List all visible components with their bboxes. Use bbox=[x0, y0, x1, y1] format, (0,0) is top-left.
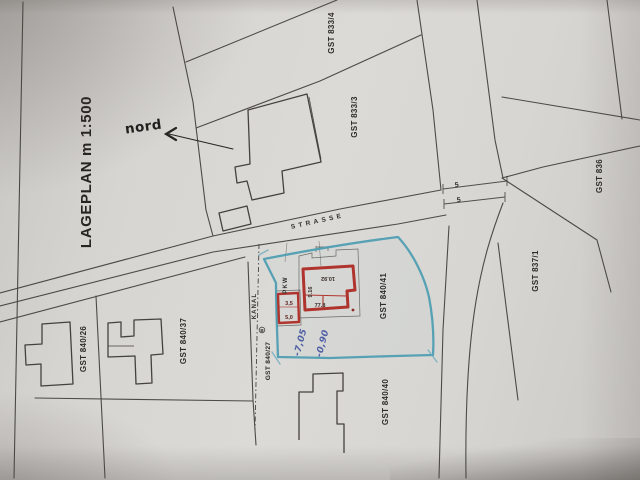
building-840-37-outline bbox=[108, 319, 163, 384]
plan-labels: LAGEPLAN m 1:500 nord STRASSE KANAL PKW … bbox=[78, 12, 604, 425]
boundary-833-4-north bbox=[186, 0, 337, 62]
plan-title: LAGEPLAN m 1:500 bbox=[78, 96, 95, 248]
sheet-edge-line bbox=[14, 2, 23, 478]
scanned-site-plan-photo: LAGEPLAN m 1:500 nord STRASSE KANAL PKW … bbox=[0, 0, 640, 480]
shed-outline bbox=[219, 206, 251, 231]
road-edge-north-right bbox=[477, 0, 503, 178]
boundary-west bbox=[173, 7, 213, 236]
parcel-label-840-27: GST 840/27 bbox=[265, 342, 272, 381]
boundary-833-4-south bbox=[196, 35, 421, 128]
kanal-label: KANAL bbox=[252, 293, 258, 320]
boundary-836-south bbox=[502, 146, 640, 178]
north-arrow bbox=[166, 128, 233, 149]
parcel-label-840-40: GST 840/40 bbox=[381, 379, 390, 425]
boundary-836-837 bbox=[502, 178, 611, 292]
parcel-label-833-3: GST 833/3 bbox=[350, 96, 359, 138]
garage-width-dim: 3,5 bbox=[285, 301, 293, 307]
street-label: STRASSE bbox=[290, 212, 345, 231]
north-label: nord bbox=[124, 117, 163, 138]
kanal-line bbox=[255, 244, 259, 430]
house-depth-dim: 9.16 bbox=[308, 287, 314, 298]
parcel-label-836: GST 836 bbox=[595, 159, 604, 193]
parcel-label-840-26: GST 840/26 bbox=[79, 326, 88, 372]
building-833-3-innerwall bbox=[309, 97, 321, 159]
house-width-dim: 10.92 bbox=[321, 275, 335, 281]
boundary-northeast bbox=[607, 0, 622, 119]
north-arrow-line bbox=[169, 134, 233, 149]
boundary-point-dot bbox=[352, 309, 355, 312]
road-dimension-lines bbox=[443, 176, 507, 209]
road-south-right-edge bbox=[466, 203, 503, 478]
road-edge-north-left bbox=[417, 0, 441, 190]
parcel-linework bbox=[0, 0, 640, 478]
house-level-dim: 77.8 bbox=[315, 303, 326, 309]
pkw-label: PKW bbox=[283, 276, 289, 293]
road-width-dim-1: 5 bbox=[454, 182, 459, 189]
paper-sheet: LAGEPLAN m 1:500 nord STRASSE KANAL PKW … bbox=[0, 0, 640, 480]
road-dim-line-2 bbox=[444, 192, 505, 209]
boundary-840-26-37 bbox=[96, 296, 105, 478]
site-plan-drawing: LAGEPLAN m 1:500 nord STRASSE KANAL PKW … bbox=[0, 0, 640, 480]
building-840-40-outline bbox=[299, 373, 344, 453]
building-840-26-outline bbox=[25, 322, 73, 386]
parcel-label-840-41: GST 840/41 bbox=[379, 273, 388, 319]
parcel-label-837-1: GST 837/1 bbox=[531, 250, 540, 292]
parcel-front-line bbox=[0, 257, 245, 322]
building-833-3-outline bbox=[235, 94, 321, 200]
boundary-837-west bbox=[498, 243, 518, 400]
road-width-dim-2: 5 bbox=[456, 197, 461, 204]
garage-length-dim: 5,0 bbox=[285, 315, 293, 321]
parcel-label-840-37: GST 840/37 bbox=[179, 318, 188, 364]
parcel-label-833-4: GST 833/4 bbox=[327, 12, 336, 54]
boundary-840-37-east bbox=[248, 262, 256, 445]
boundary-840-37-south bbox=[35, 398, 253, 401]
road-dim-line-1 bbox=[443, 176, 507, 194]
road-south-left-edge bbox=[439, 226, 449, 478]
